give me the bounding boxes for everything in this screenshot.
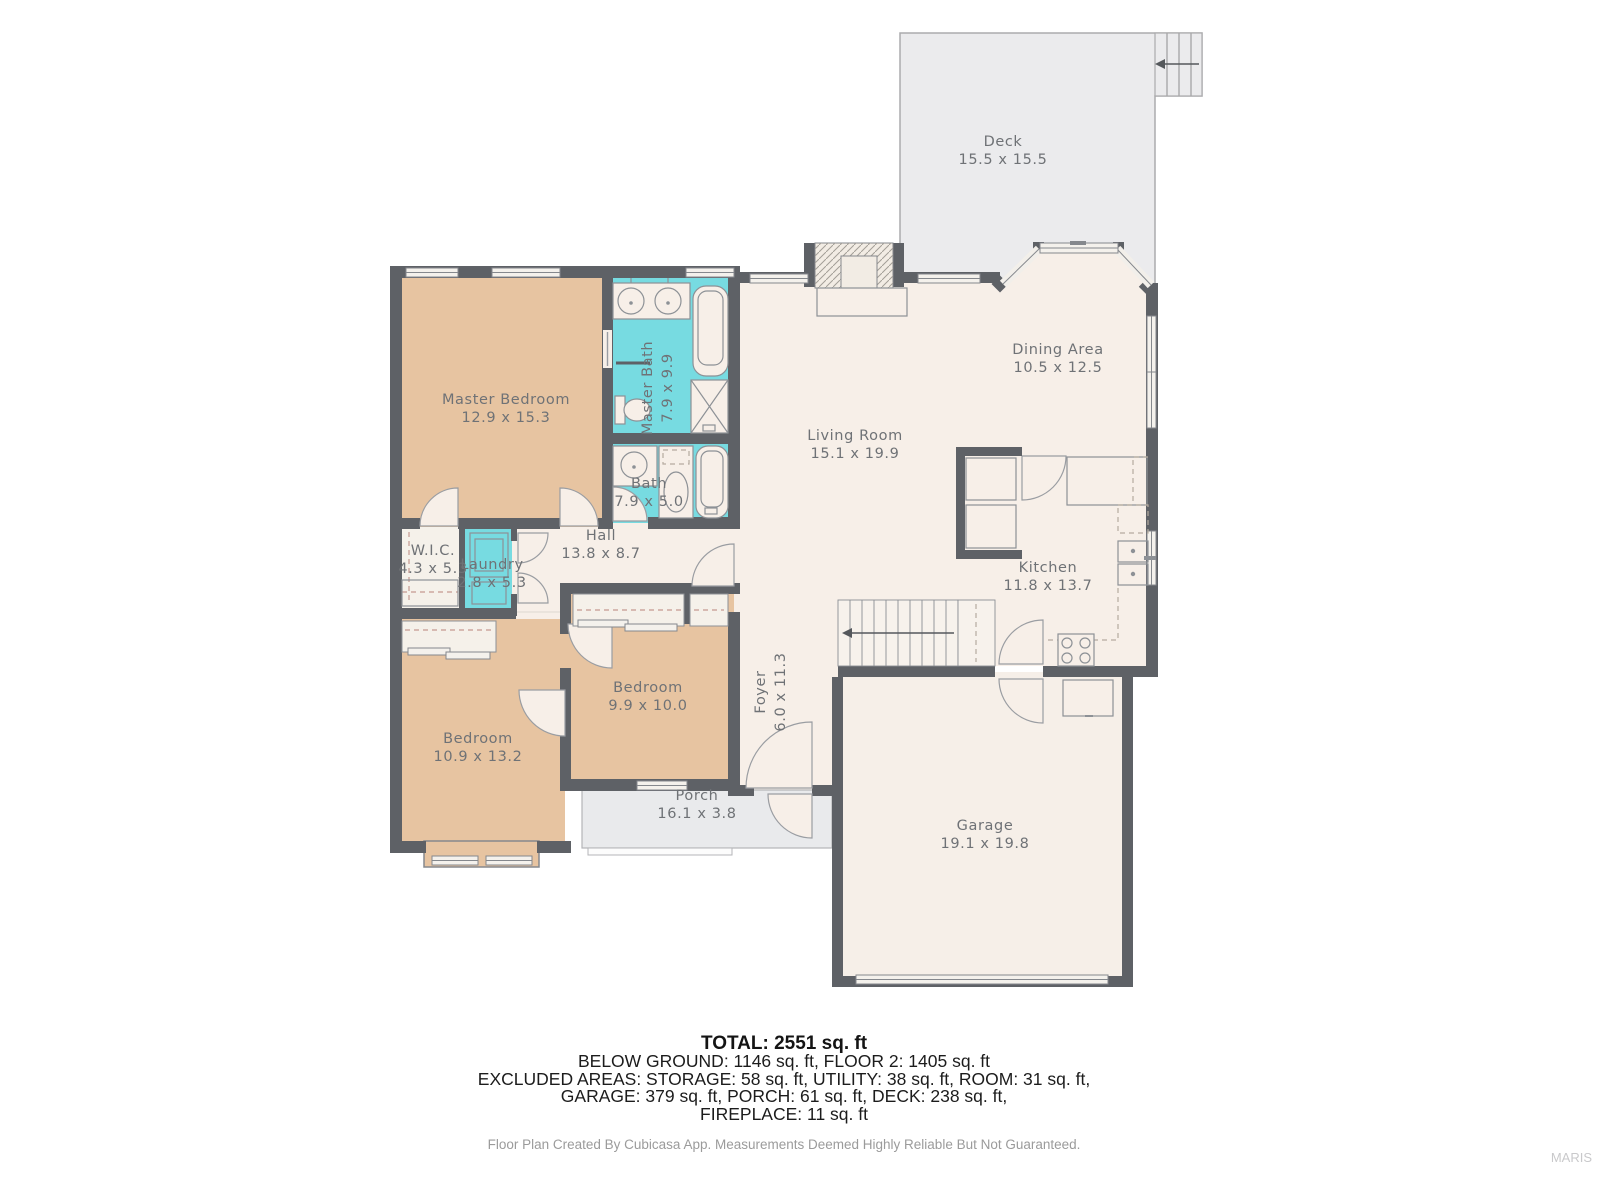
svg-text:Foyer: Foyer [753,670,769,713]
area-summary: TOTAL: 2551 sq. ft BELOW GROUND: 1146 sq… [478,1033,1593,1165]
interior-stairs [838,600,995,666]
svg-text:19.1 x 19.8: 19.1 x 19.8 [941,836,1030,852]
floor-plan-canvas: Deck 15.5 x 15.5 Master Bedroom 12.9 x 1… [0,0,1600,1200]
svg-text:Bath: Bath [631,476,667,492]
window [918,274,980,283]
window [1147,316,1156,428]
maris-watermark: MARIS [1551,1150,1593,1165]
svg-text:Kitchen: Kitchen [1019,560,1078,576]
svg-text:Deck: Deck [984,134,1023,150]
bedroom1-closet [402,621,496,659]
deck-stairs [1155,33,1202,96]
deck-sliding-door [1040,241,1118,253]
window [492,268,560,277]
svg-text:Bedroom: Bedroom [443,731,513,747]
svg-text:Master Bath: Master Bath [640,341,656,435]
svg-text:7.9 x 5.0: 7.9 x 5.0 [614,494,683,510]
svg-text:Master Bedroom: Master Bedroom [442,392,570,408]
svg-text:Porch: Porch [676,788,719,804]
svg-text:Laundry: Laundry [460,557,523,573]
svg-text:6.0 x 11.3: 6.0 x 11.3 [773,652,789,731]
svg-text:11.8 x 13.7: 11.8 x 13.7 [1004,578,1093,594]
summary-line2: BELOW GROUND: 1146 sq. ft, FLOOR 2: 1405… [578,1051,990,1071]
svg-text:16.1 x 3.8: 16.1 x 3.8 [657,806,736,822]
svg-text:Living Room: Living Room [807,428,903,444]
svg-text:Garage: Garage [957,818,1014,834]
porch-step [588,848,732,855]
window [432,856,478,865]
svg-text:13.8 x 8.7: 13.8 x 8.7 [561,546,640,562]
bedroom2-closets [573,594,728,631]
svg-text:Dining Area: Dining Area [1012,342,1103,358]
window [750,274,808,283]
svg-text:12.9 x 15.3: 12.9 x 15.3 [462,410,551,426]
svg-text:Hall: Hall [586,528,616,544]
svg-text:W.I.C.: W.I.C. [411,543,456,559]
svg-text:2.8 x 5.3: 2.8 x 5.3 [457,575,526,591]
stove [1058,634,1094,666]
svg-text:15.5 x 15.5: 15.5 x 15.5 [959,152,1048,168]
floor-plan-page: Deck 15.5 x 15.5 Master Bedroom 12.9 x 1… [0,0,1600,1200]
svg-text:10.9 x 13.2: 10.9 x 13.2 [434,749,523,765]
shower [691,380,728,433]
window [486,856,532,865]
svg-text:15.1 x 19.9: 15.1 x 19.9 [811,446,900,462]
disclaimer-text: Floor Plan Created By Cubicasa App. Meas… [488,1137,1081,1152]
window [686,268,734,277]
svg-text:7.9 x 9.9: 7.9 x 9.9 [660,353,676,422]
garage-door [856,975,1108,984]
window [406,268,458,277]
svg-text:9.9 x 10.0: 9.9 x 10.0 [608,698,687,714]
summary-line5: FIREPLACE: 11 sq. ft [700,1104,868,1124]
svg-text:10.5 x 12.5: 10.5 x 12.5 [1014,360,1103,376]
double-vanity [613,283,690,319]
garage-appliance [1063,680,1113,716]
summary-line4: GARAGE: 379 sq. ft, PORCH: 61 sq. ft, DE… [561,1086,1007,1106]
svg-text:Bedroom: Bedroom [613,680,683,696]
